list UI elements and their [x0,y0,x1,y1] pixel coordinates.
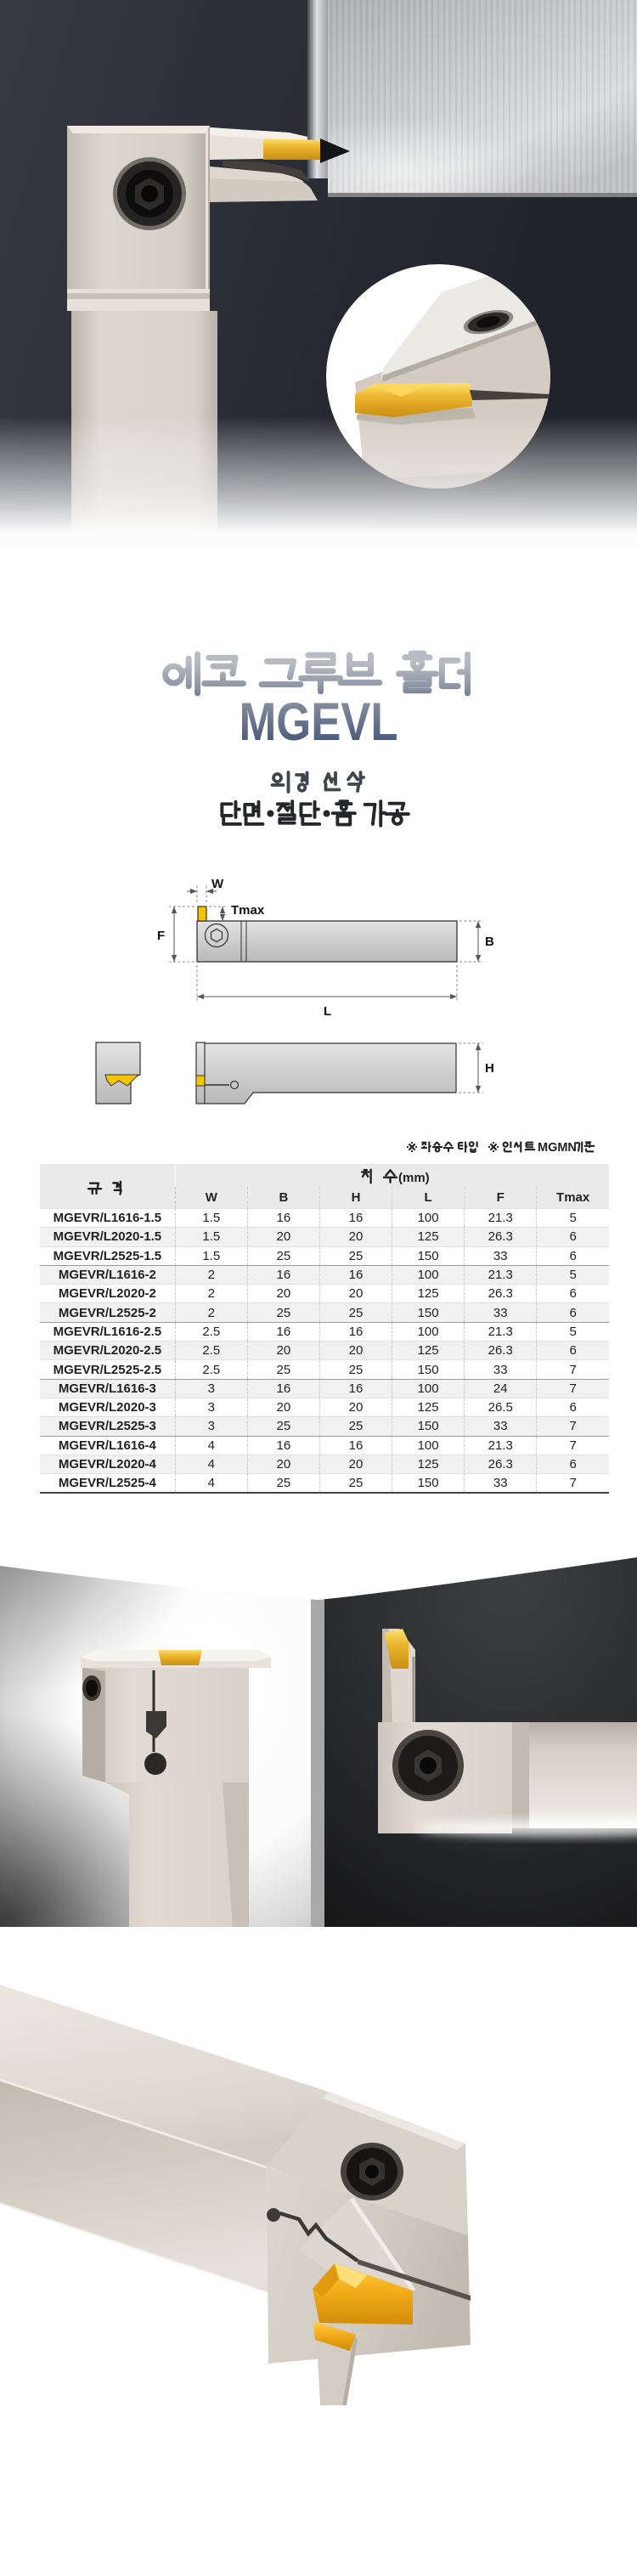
svg-text:(mm): (mm) [398,1171,430,1185]
svg-text:MGMN: MGMN [538,1141,577,1155]
svg-text:H: H [485,1061,494,1076]
svg-text:B: B [485,935,494,949]
svg-text:Tmax: Tmax [231,903,265,918]
svg-text:F: F [157,929,165,943]
svg-text:L: L [324,1004,331,1019]
svg-text:W: W [211,877,224,891]
svg-text:MGEVL: MGEVL [240,692,398,752]
